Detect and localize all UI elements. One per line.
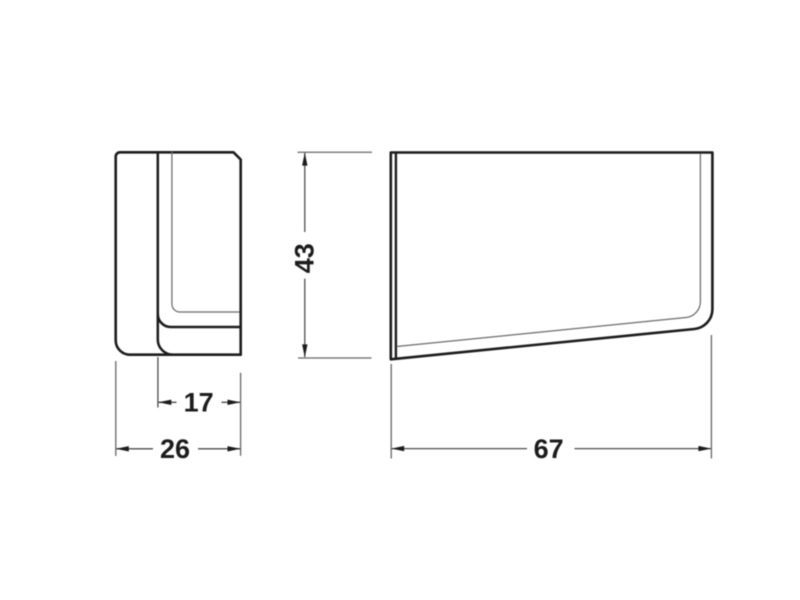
svg-text:67: 67 xyxy=(534,434,564,464)
svg-text:43: 43 xyxy=(289,243,319,273)
svg-text:26: 26 xyxy=(160,434,190,464)
svg-text:17: 17 xyxy=(184,388,214,418)
